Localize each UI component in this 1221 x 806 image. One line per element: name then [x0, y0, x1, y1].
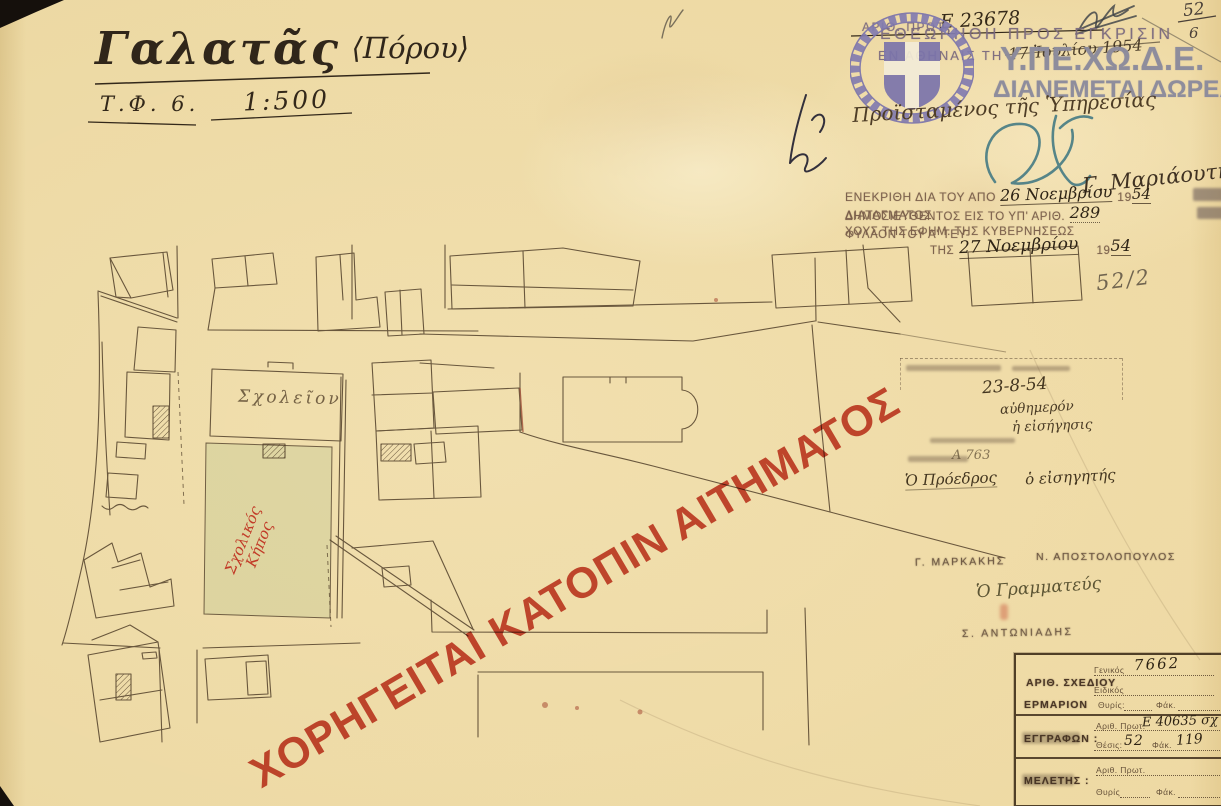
review-stamp-line2-label: ΕΝ ΑΘΗΝΑΙΣ ΤΗ	[878, 48, 1003, 63]
approval-l4-year: 54	[1111, 236, 1131, 256]
archive-row4-f3-label: Φάκ.	[1156, 787, 1176, 797]
ministry-acronym-overprint: Υ.ΠΕ.ΧΩ.Δ.Ε.	[1000, 40, 1204, 78]
council-date: 23-8-54	[981, 374, 1048, 399]
school-building-label: Σχολεῖον	[238, 387, 342, 410]
archive-row3-f2-value: 52	[1124, 733, 1144, 749]
committee-member2: Ν. ΑΠΟΣΤΟΛΟΠΟΥΛΟΣ	[1036, 551, 1176, 563]
council-president-label: Ὁ Πρόεδρος	[905, 468, 998, 490]
scanned-town-plan-document: Γαλατᾶς ⟨Πόρου⟩ Τ.Φ. 6. 1:500 Σχολεῖον Σ…	[0, 0, 1221, 806]
page-title: Γαλατᾶς	[95, 22, 341, 75]
pencil-scribble	[662, 10, 683, 38]
pencil-archive-note: 52/2	[1095, 265, 1153, 296]
approval-l4-date: 27 Νοεμβρίου	[958, 234, 1078, 259]
archive-row4-f1-label: Αριθ. Πρωτ.	[1096, 765, 1220, 776]
council-note1: αὐθημερόν	[1000, 398, 1075, 418]
committee-member1: Γ. ΜΑΡΚΑΚΗΣ	[915, 555, 1006, 569]
approval-l4-a: ΤΗΣ	[930, 245, 954, 257]
council-stamp: 23-8-54 αὐθημερόν ἡ εἰσήγησις Α 763 Ὁ Πρ…	[900, 356, 1132, 526]
request-only-watermark: ΧΟΡΗΓΕΙΤΑΙ ΚΑΤΟΠΙΝ ΑΙΤΗΜΑΤΟΣ	[242, 378, 908, 798]
corner-fraction: 52 6	[1183, 0, 1205, 42]
archive-row4-f2-label: Θυρίς	[1096, 787, 1120, 797]
archive-row2-f2-label: Φάκ.	[1156, 700, 1176, 710]
archive-filing-box: ΑΡΙΘ. ΣΧΕΔΙΟΥ Γενικός 7662 Ειδικός ΕΡΜΑΡ…	[1014, 653, 1221, 806]
archive-row2-f1-label: Θυρίς:	[1098, 700, 1125, 710]
red-ink-smudge	[1000, 604, 1008, 620]
archive-row1-f1-value: 7662	[1134, 654, 1181, 674]
archive-row3-f3-value: 119	[1175, 731, 1203, 749]
secretary-name: Σ. ΑΝΤΩΝΙΑΔΗΣ	[962, 626, 1074, 640]
archive-row1-f2-label: Ειδικός	[1094, 685, 1214, 696]
archive-row3-f1-value: Ε 40635 σχ	[1142, 713, 1218, 731]
approval-l2-num: 289	[1070, 203, 1101, 223]
secretary-label: Ὁ Γραμματεύς	[975, 574, 1101, 603]
ink-signature-left	[790, 95, 826, 171]
archive-row2-label: ΕΡΜΑΡΙΟΝ	[1024, 699, 1088, 711]
map-scale: 1:500	[243, 84, 331, 116]
approval-stamp: ΕΝΕΚΡΙΘΗ ΔΙΑ ΤΟΥ ΑΠΟ 26 Νοεμβρίου 1954 Δ…	[845, 186, 1221, 259]
approval-l1-a: ΕΝΕΚΡΙΘΗ ΔΙΑ ΤΟΥ ΑΠΟ	[845, 190, 996, 204]
approval-l1-year: 54	[1132, 185, 1151, 204]
council-note2: ἡ εἰσήγησις	[1012, 417, 1093, 436]
title-block: Γαλατᾶς ⟨Πόρου⟩	[95, 22, 463, 75]
approval-l1-b: 19	[1117, 190, 1132, 204]
approval-l4-b: 19	[1097, 245, 1111, 257]
council-ref-number: Α 763	[952, 448, 990, 463]
page-title-suffix: ⟨Πόρου⟩	[352, 31, 470, 65]
sheet-reference: Τ.Φ. 6.	[100, 92, 199, 116]
corner-fraction-top: 52	[1182, 0, 1206, 21]
council-rapporteur-label: ὁ εἰσηγητής	[1025, 466, 1116, 489]
teal-signature	[986, 116, 1092, 185]
school-garden-label: Σχολικός Κήπος	[222, 504, 280, 583]
